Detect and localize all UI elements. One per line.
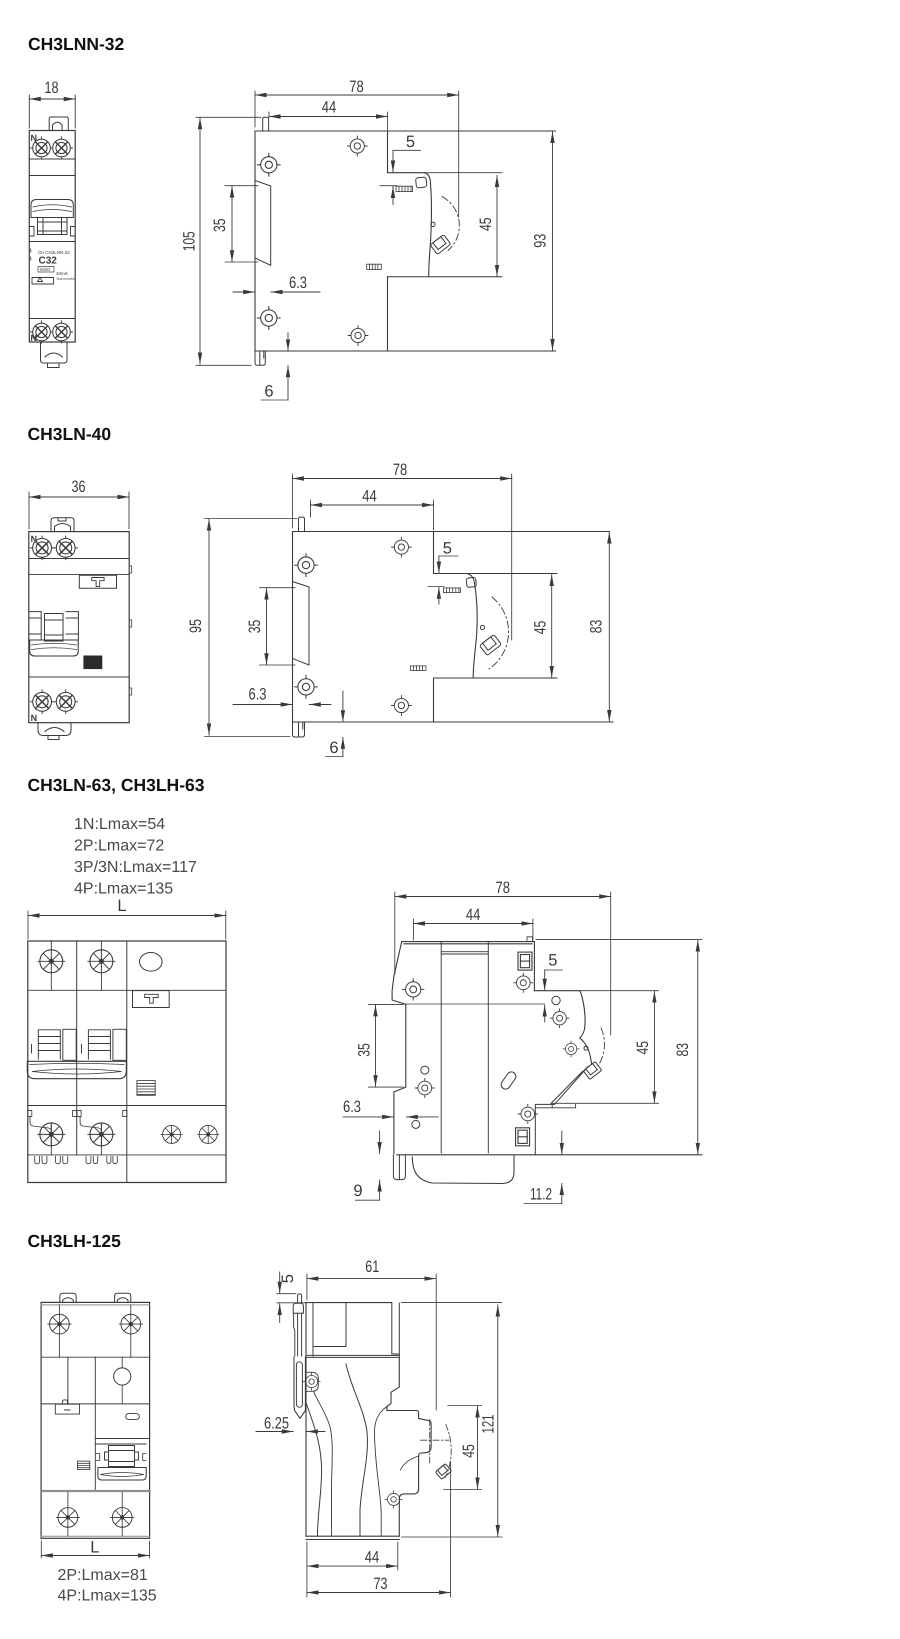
svg-text:95: 95 [187, 619, 205, 633]
svg-text:45: 45 [634, 1041, 652, 1055]
svg-text:CH3LNN-32: CH3LNN-32 [28, 34, 125, 54]
svg-text:35: 35 [355, 1043, 373, 1057]
svg-text:44: 44 [365, 1549, 380, 1567]
svg-text:45: 45 [477, 218, 495, 232]
svg-text:30mA: 30mA [56, 271, 68, 276]
svg-text:6.3: 6.3 [343, 1098, 361, 1116]
svg-text:On CH3LNN-32: On CH3LNN-32 [38, 250, 70, 255]
svg-text:6.3: 6.3 [289, 274, 307, 292]
svg-text:4P:Lmax=135: 4P:Lmax=135 [58, 1588, 157, 1605]
svg-text:1N:Lmax=54: 1N:Lmax=54 [74, 816, 165, 833]
svg-text:83: 83 [587, 620, 605, 634]
svg-text:35: 35 [211, 218, 229, 232]
svg-text:5: 5 [443, 540, 452, 558]
svg-text:CH3LN-63, CH3LH-63: CH3LN-63, CH3LH-63 [28, 775, 205, 795]
svg-text:44: 44 [322, 99, 337, 117]
svg-text:C32: C32 [39, 256, 58, 267]
svg-text:6.3: 6.3 [249, 686, 267, 704]
svg-text:45: 45 [460, 1444, 478, 1458]
svg-text:105: 105 [180, 231, 198, 251]
svg-text:9: 9 [353, 1182, 362, 1200]
svg-text:CH3LH-125: CH3LH-125 [28, 1231, 122, 1251]
svg-text:78: 78 [393, 461, 408, 479]
svg-text:44: 44 [466, 906, 481, 924]
svg-text:5: 5 [406, 133, 415, 151]
svg-text:121: 121 [479, 1415, 497, 1434]
svg-text:2P:Lmax=72: 2P:Lmax=72 [74, 838, 164, 855]
svg-text:18: 18 [45, 79, 59, 97]
svg-text:6: 6 [329, 739, 338, 757]
svg-text:5: 5 [548, 952, 557, 970]
svg-text:78: 78 [495, 879, 510, 897]
svg-text:6: 6 [264, 383, 273, 401]
svg-text:2P:Lmax=81: 2P:Lmax=81 [58, 1567, 148, 1584]
svg-text:3P/3N:Lmax=117: 3P/3N:Lmax=117 [74, 859, 197, 876]
svg-text:L: L [117, 897, 126, 915]
svg-text:44: 44 [362, 488, 377, 506]
svg-text:CH3LN-40: CH3LN-40 [28, 424, 112, 444]
svg-text:45: 45 [531, 621, 549, 635]
svg-text:61: 61 [365, 1258, 379, 1276]
svg-text:93: 93 [531, 234, 549, 248]
svg-text:L: L [90, 1539, 99, 1557]
svg-text:78: 78 [349, 78, 364, 96]
svg-text:11.2: 11.2 [530, 1186, 552, 1204]
svg-text:4P:Lmax=135: 4P:Lmax=135 [74, 881, 173, 898]
svg-text:36: 36 [72, 478, 86, 496]
svg-text:Test monthly: Test monthly [56, 277, 76, 281]
svg-text:N: N [31, 713, 37, 723]
svg-text:35: 35 [246, 620, 264, 634]
svg-text:6.25: 6.25 [264, 1415, 289, 1433]
svg-text:6000: 6000 [40, 267, 51, 272]
svg-text:73: 73 [374, 1575, 388, 1593]
svg-text:5: 5 [279, 1274, 297, 1283]
svg-text:83: 83 [674, 1043, 692, 1057]
